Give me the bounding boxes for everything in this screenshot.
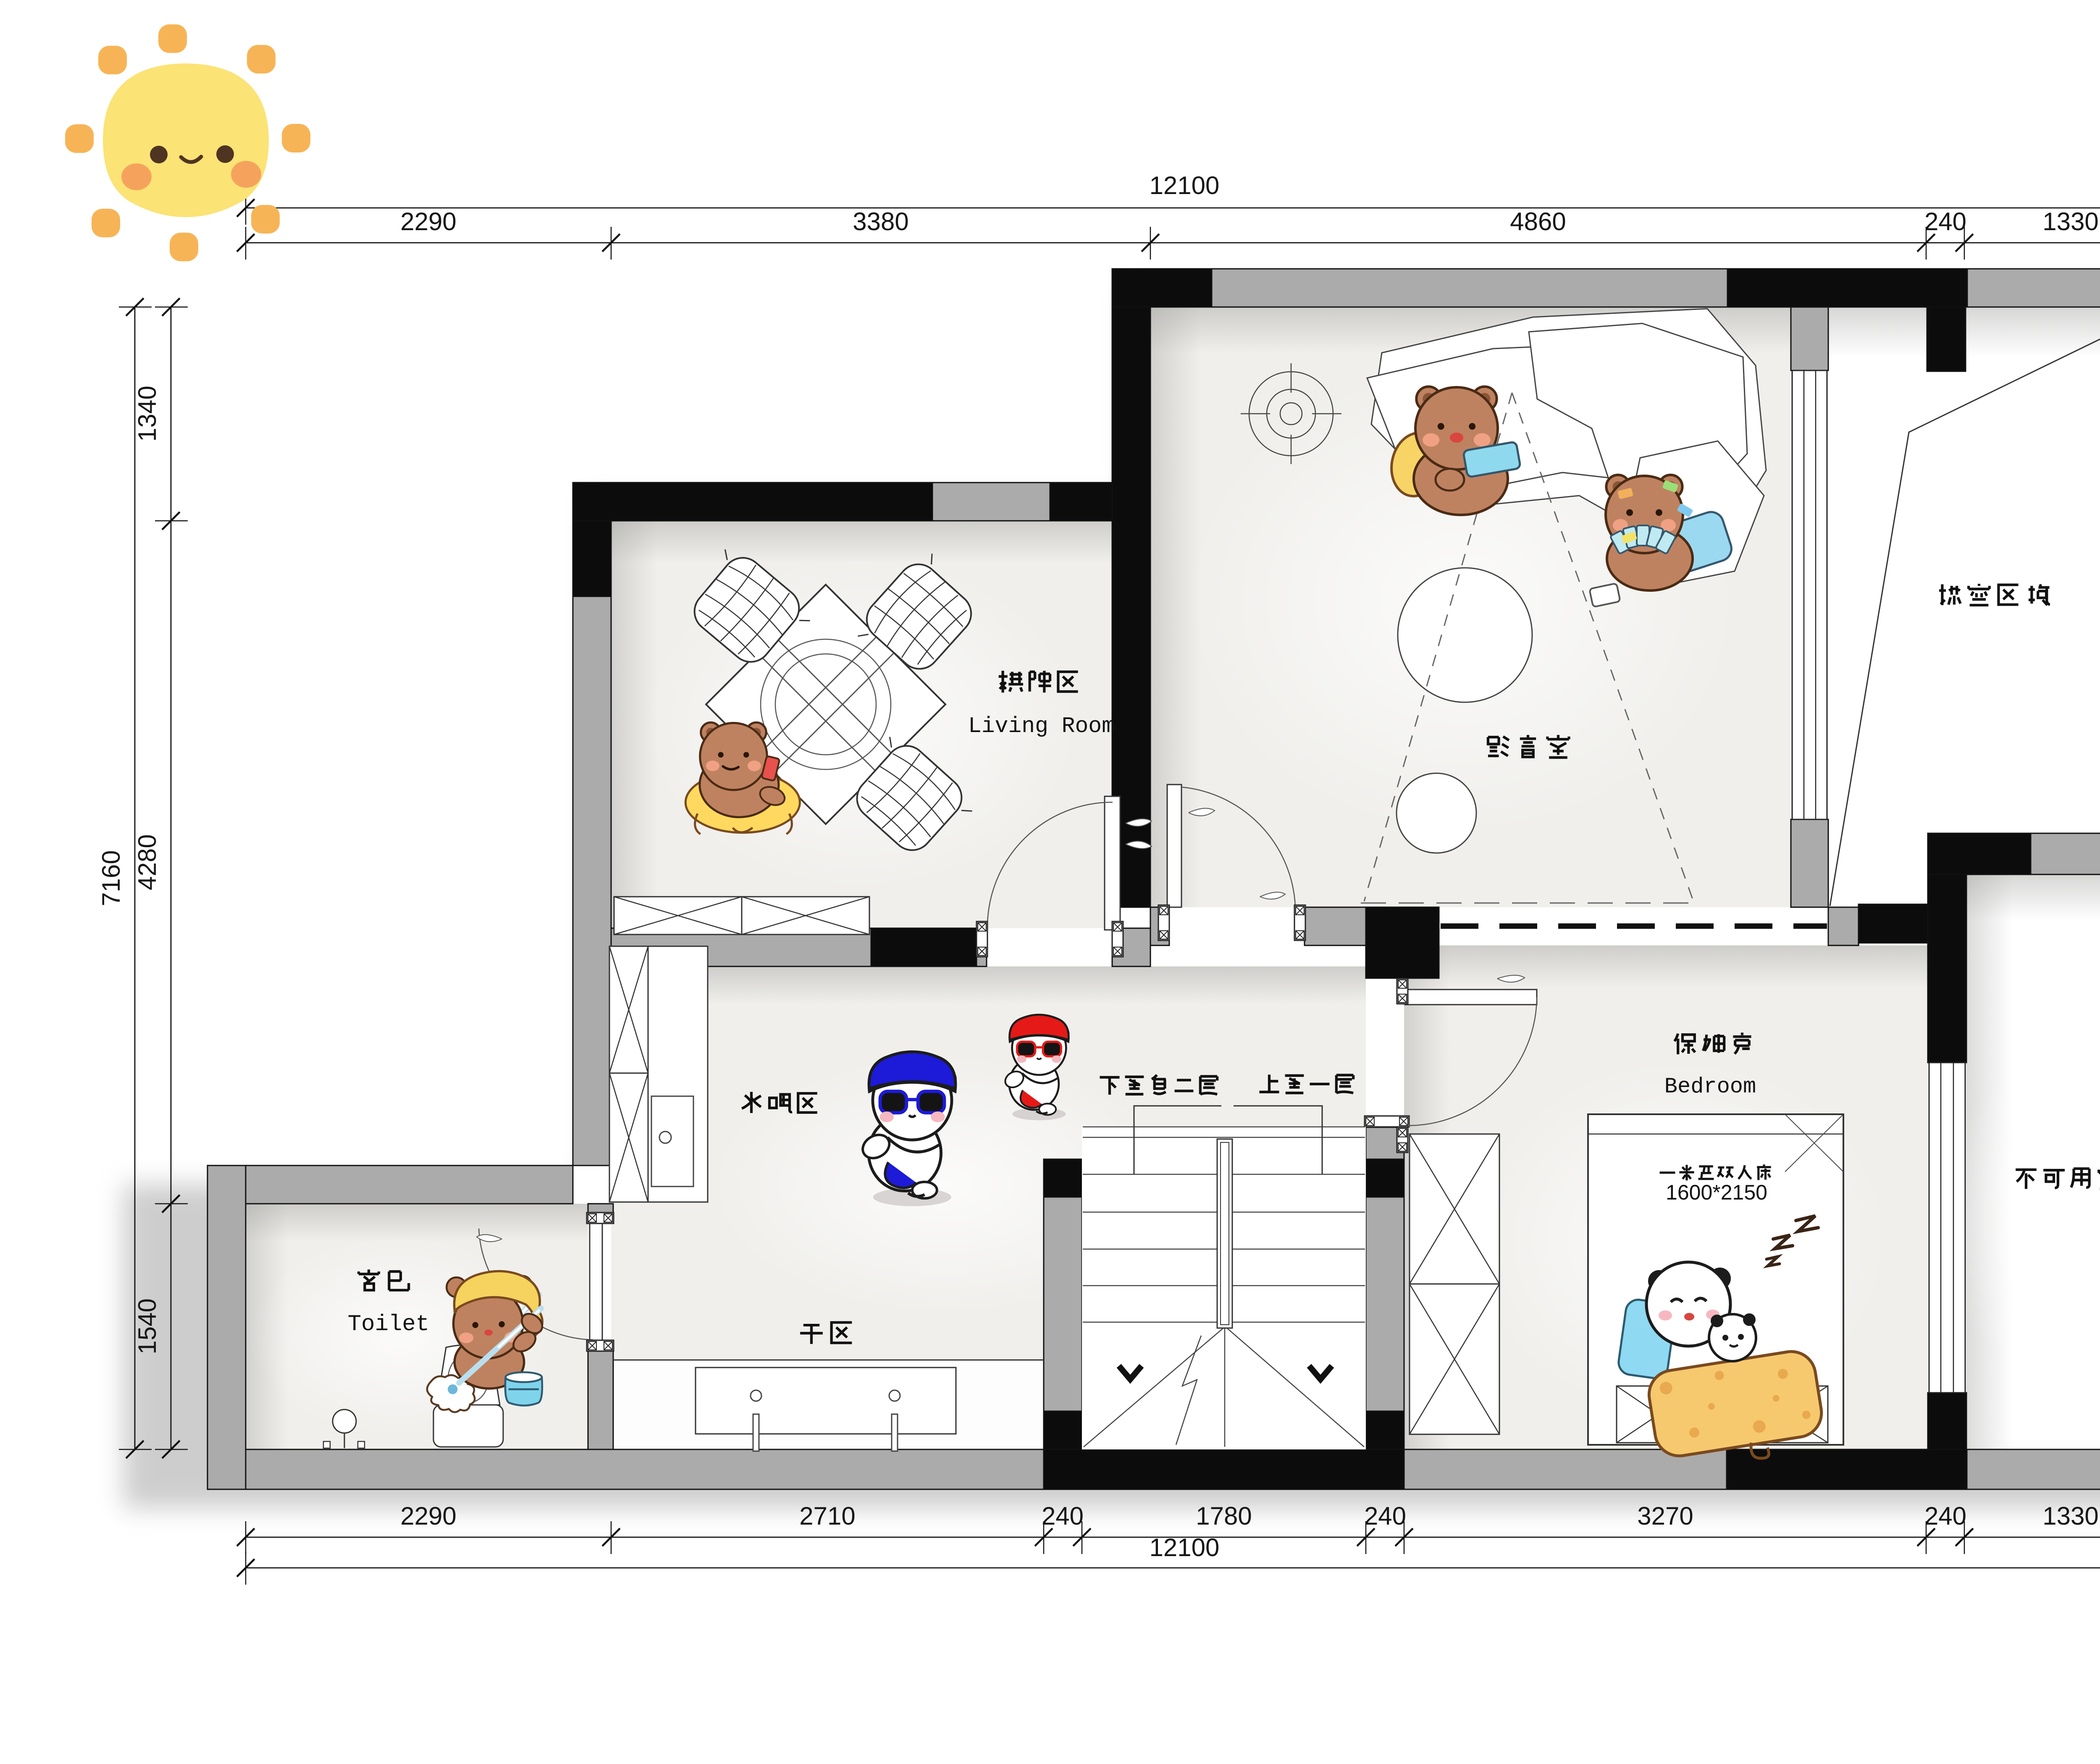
- svg-text:Living Room: Living Room: [968, 714, 1115, 739]
- svg-text:240: 240: [1924, 207, 1966, 236]
- svg-text:4860: 4860: [1510, 207, 1566, 236]
- svg-text:240: 240: [1924, 1502, 1966, 1530]
- svg-text:Bedroom: Bedroom: [1664, 1074, 1756, 1099]
- svg-text:12100: 12100: [1150, 1533, 1220, 1562]
- svg-text:1330: 1330: [2042, 1502, 2098, 1530]
- svg-text:3380: 3380: [853, 207, 908, 236]
- svg-text:2290: 2290: [400, 1502, 456, 1530]
- svg-text:4280: 4280: [133, 834, 161, 890]
- svg-text:Toilet: Toilet: [348, 1312, 429, 1337]
- svg-text:2710: 2710: [799, 1502, 855, 1530]
- svg-text:7160: 7160: [97, 850, 125, 906]
- svg-text:12100: 12100: [1150, 171, 1220, 199]
- svg-text:1600*2150: 1600*2150: [1666, 1181, 1767, 1204]
- svg-text:240: 240: [1364, 1502, 1406, 1530]
- svg-text:1340: 1340: [133, 386, 161, 441]
- svg-text:1330: 1330: [2042, 207, 2098, 236]
- svg-text:1780: 1780: [1196, 1502, 1252, 1530]
- svg-text:1540: 1540: [133, 1298, 161, 1354]
- svg-text:240: 240: [1042, 1502, 1084, 1530]
- svg-text:3270: 3270: [1637, 1502, 1693, 1530]
- svg-text:2290: 2290: [400, 207, 456, 236]
